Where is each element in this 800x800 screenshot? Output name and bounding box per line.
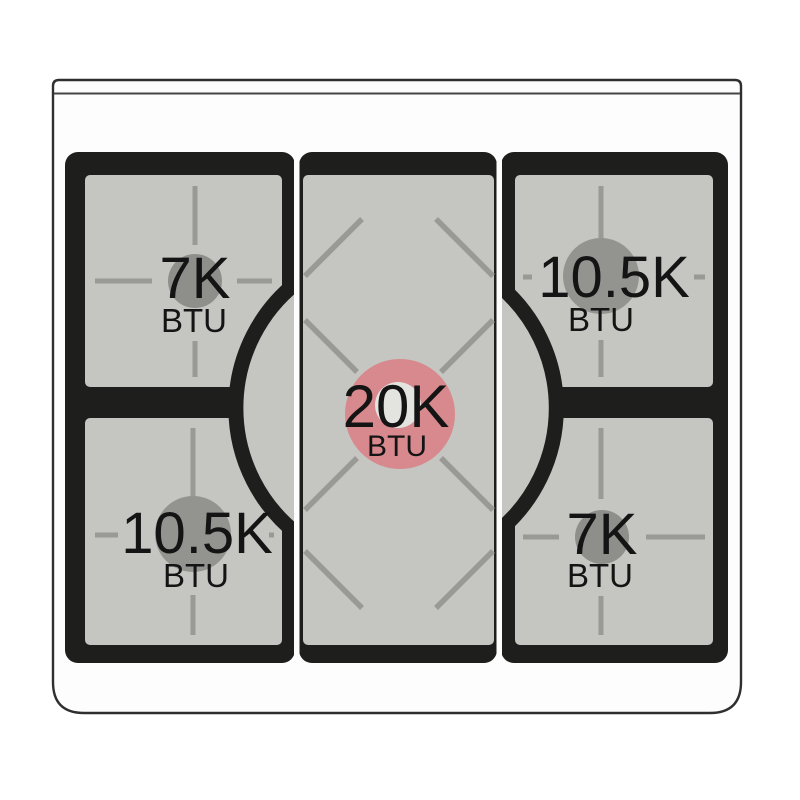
burner-unit-front-right: BTU [567,557,633,594]
burner-unit-rear-right: BTU [568,301,634,338]
cooktop-diagram: 7K BTU 10.5K BTU 20K BTU 10.5K BTU 7K BT… [0,0,800,800]
divider-line-left [294,152,300,663]
burner-unit-rear-left: BTU [161,302,227,339]
divider-line-right [497,152,503,663]
burner-unit-center: BTU [367,430,427,463]
burner-unit-front-left: BTU [163,557,229,594]
cooktop-product-image: 7K BTU 10.5K BTU 20K BTU 10.5K BTU 7K BT… [0,0,800,800]
